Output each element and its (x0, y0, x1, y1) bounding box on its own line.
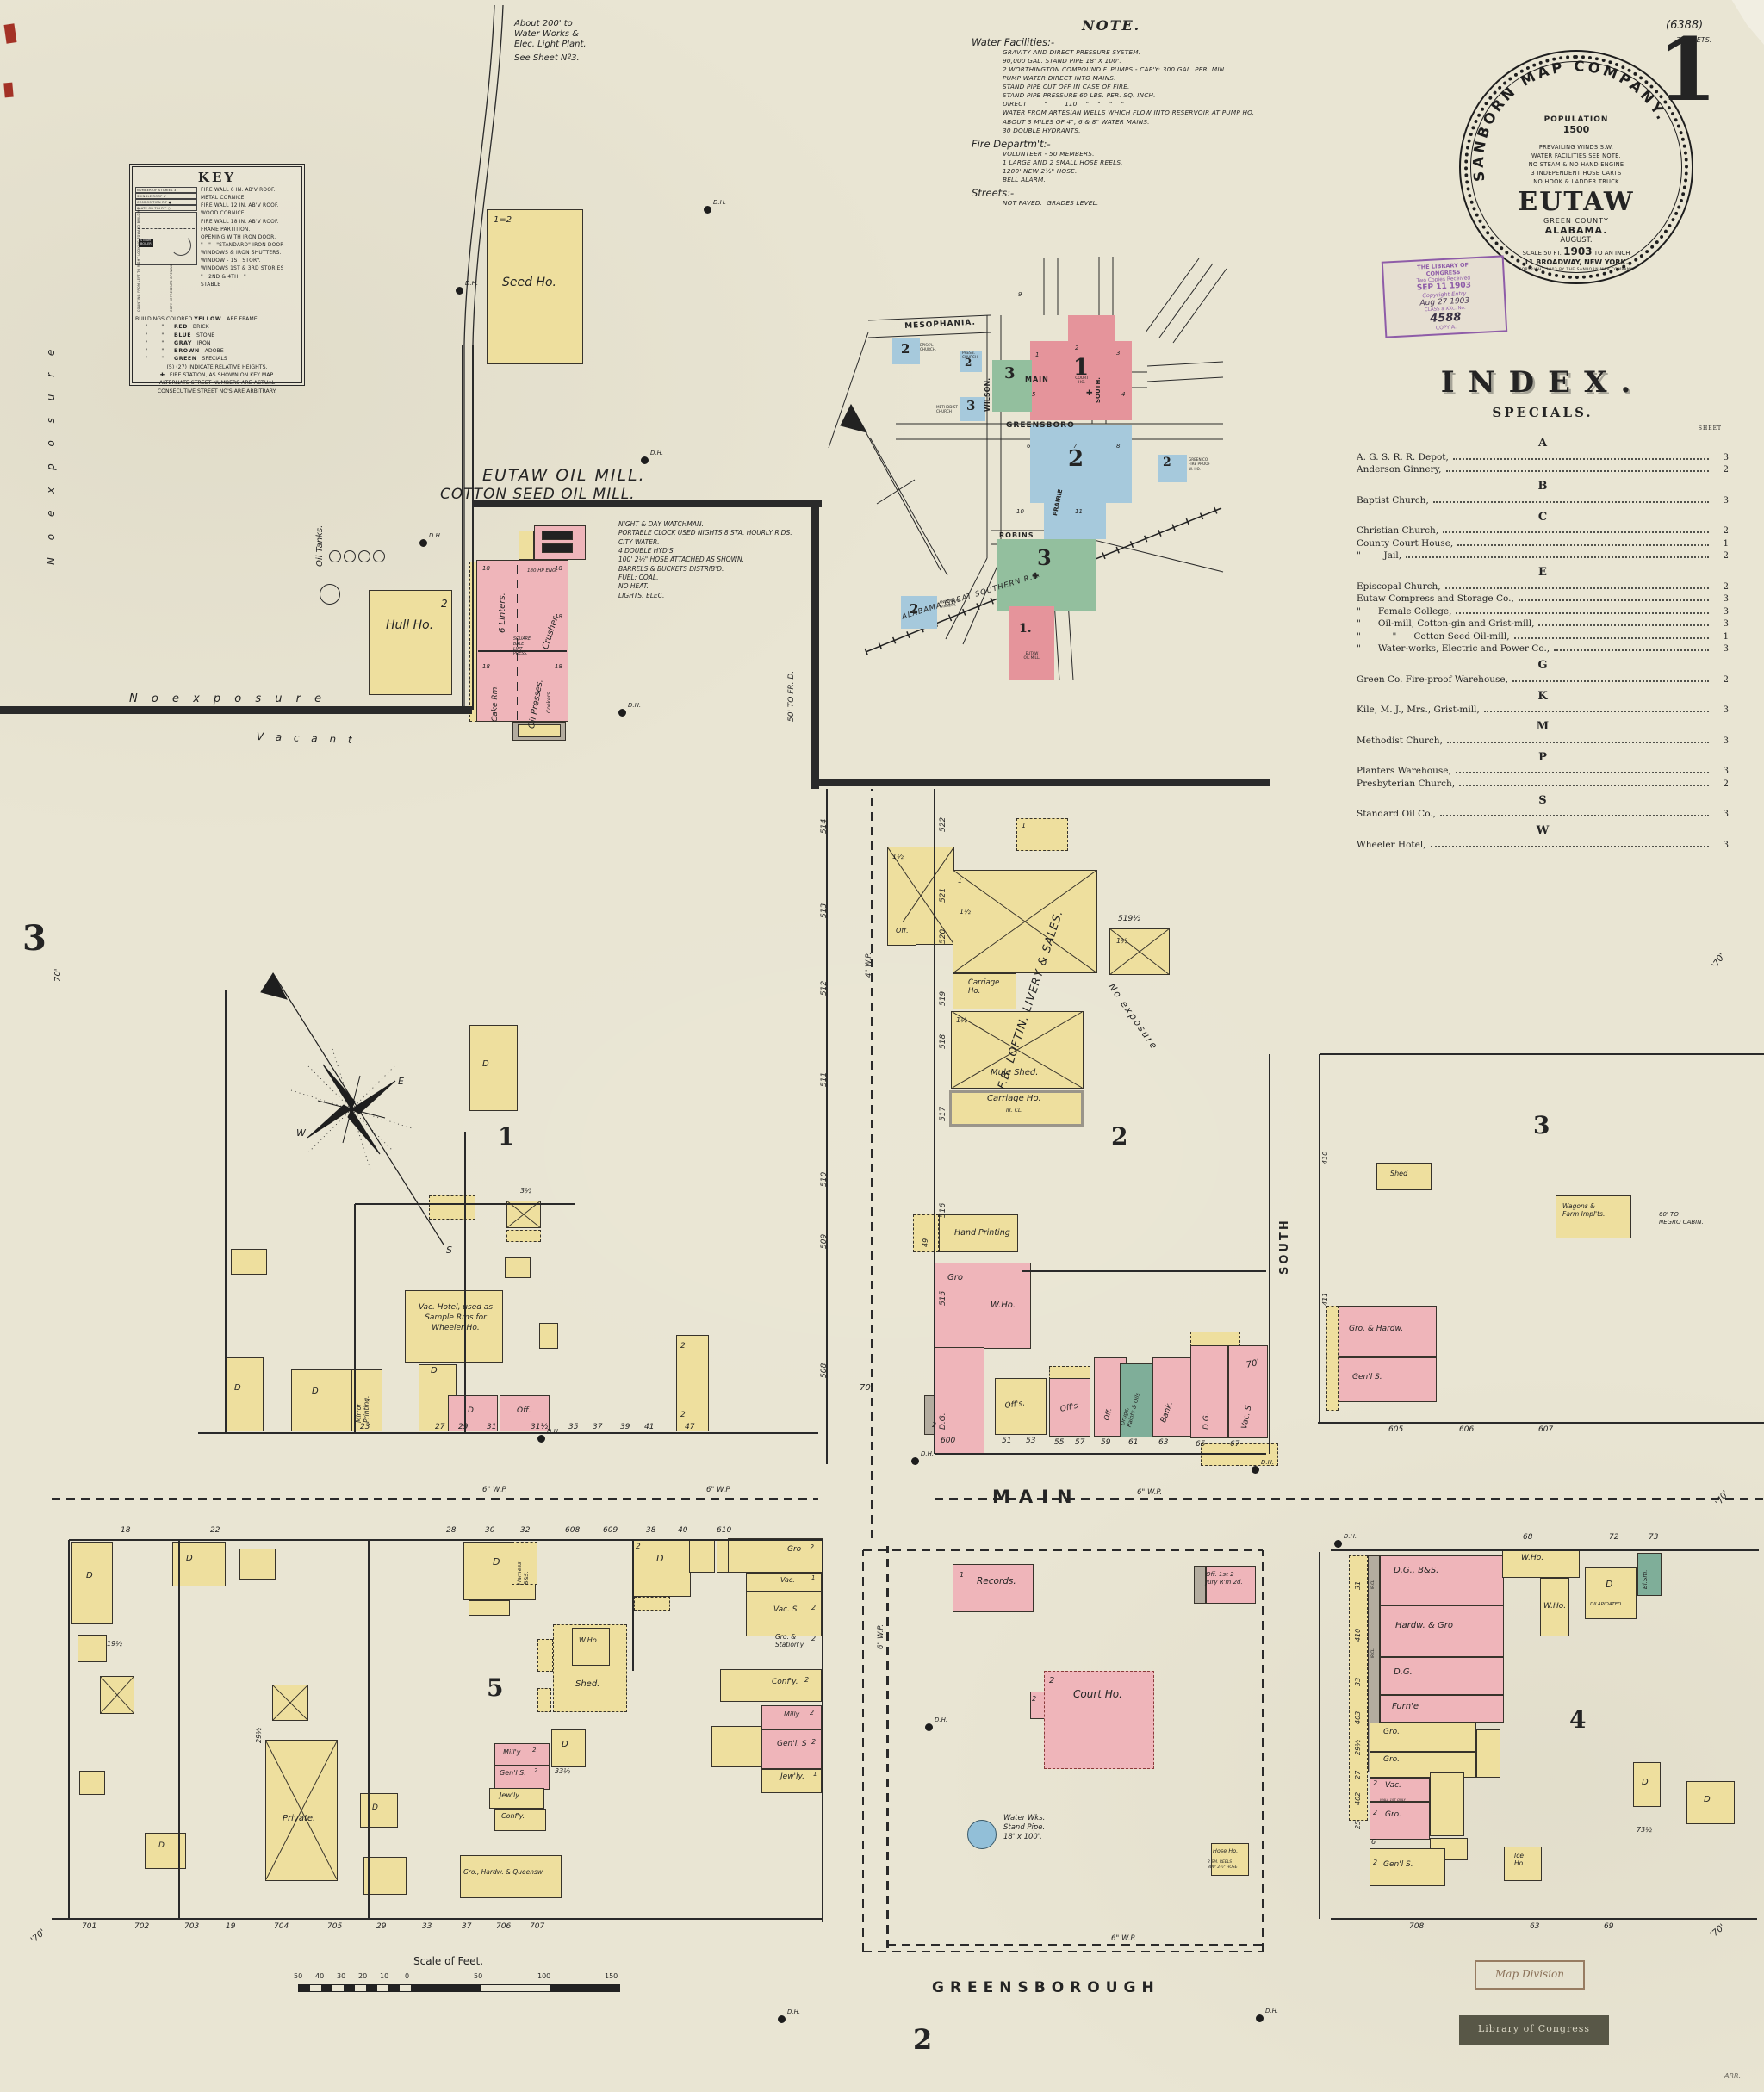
index-entry: " " Cotton Seed Oil-mill,1 (1357, 631, 1729, 642)
map-label: 180 HP ENG. (527, 568, 557, 574)
map-label: W.Ho. (579, 1636, 599, 1644)
building-footprint (1009, 606, 1054, 680)
index-panel: INDEX. SPECIALS. SHEET AA. G. S. R. R. D… (1357, 365, 1729, 852)
index-entry-name: " Female College, (1357, 606, 1451, 617)
index-entry-sheet: 3 (1713, 495, 1729, 506)
index-entry-name: A. G. S. R. R. Depot, (1357, 452, 1449, 462)
map-label: 411 (1321, 1293, 1329, 1306)
map-label: D (562, 1740, 568, 1750)
county: GREEN COUNTY (1471, 217, 1681, 225)
street-lot-line (52, 1918, 823, 1919)
index-entry-sheet: 1 (1713, 538, 1729, 549)
map-label: D (186, 1554, 193, 1564)
map-label: 508 (820, 1363, 829, 1378)
map-label: 1 (1022, 822, 1026, 829)
map-label: 18 (482, 565, 490, 572)
street-lot-line (198, 1432, 818, 1433)
map-label: 600 (941, 1437, 955, 1446)
building-footprint (369, 590, 452, 695)
index-letter-heading: C (1357, 511, 1729, 524)
oil-tank (344, 550, 356, 562)
key-caption: COUNTING FROM LEFT TO RIGHT LOOKING TOWA… (137, 207, 140, 312)
map-label: 29 (458, 1423, 468, 1432)
map-label: 1½ (956, 1016, 967, 1024)
index-leader-dots (1431, 846, 1709, 847)
map-label: Harness B&S. (517, 1562, 531, 1585)
building-footprint (506, 1230, 541, 1242)
key-color-row: " " BROWN ADOBE (135, 347, 299, 355)
double-hydrant-dot (419, 539, 427, 547)
double-hydrant-label: D.H. (1265, 2008, 1278, 2014)
building-footprint (272, 1685, 308, 1721)
index-entry-name: Methodist Church, (1357, 736, 1443, 746)
building-footprint (1152, 1357, 1194, 1437)
building-footprint (1326, 1306, 1339, 1411)
double-hydrant-dot (537, 1435, 545, 1443)
map-label: Scale of Feet. (413, 1955, 483, 1967)
note-line: NOT PAVED. GRADES LEVEL. (1003, 199, 1239, 208)
building-footprint (711, 1726, 761, 1767)
map-label: Private. (283, 1814, 315, 1824)
index-entry: Green Co. Fire-proof Warehouse,2 (1357, 674, 1729, 685)
map-label: 49 (922, 1238, 929, 1247)
key-symbol-line: WINDOWS & IRON SHUTTERS. (201, 250, 299, 258)
map-label: D.G., B&S. (1394, 1566, 1438, 1576)
map-label: D.G. (939, 1412, 948, 1430)
map-label: 39 (620, 1423, 630, 1432)
map-label: 2 (965, 357, 972, 369)
map-label: 2 (1049, 1676, 1054, 1686)
map-label: METHODIST CHURCH (936, 405, 958, 414)
index-leader-dots (1446, 470, 1710, 472)
map-label: 3 (966, 399, 975, 414)
map-label: 1 (1035, 351, 1039, 358)
index-letter-heading: M (1357, 720, 1729, 733)
index-entry-sheet: 3 (1713, 606, 1729, 617)
map-label: Vac. (780, 1576, 795, 1584)
street-lot-line (464, 1132, 465, 1433)
double-hydrant-dot (456, 287, 463, 295)
street-lot-line (1319, 1054, 1320, 1423)
building-footprint (720, 1669, 822, 1702)
index-entry-name: " Jail, (1357, 550, 1401, 561)
map-label: 1. (1019, 622, 1032, 636)
index-sheet-column-label: SHEET (1357, 425, 1722, 431)
double-hydrant-dot (1256, 2014, 1264, 2022)
map-label: 29½ (255, 1728, 263, 1743)
index-entry-sheet: 2 (1713, 464, 1729, 475)
index-entry-name: Episcopal Church, (1357, 581, 1441, 592)
map-label: IR. CL. (1006, 1108, 1022, 1114)
map-label: 32 (520, 1526, 530, 1536)
map-label: 28 (446, 1526, 456, 1536)
map-label: DILAPIDATED (1590, 1602, 1621, 1607)
map-label: N o e x p o s u r e (45, 343, 57, 565)
map-label: 47 (685, 1423, 694, 1432)
index-entry: Baptist Church,3 (1357, 495, 1729, 506)
map-label: MAIN (1025, 376, 1049, 383)
index-entry: Kile, M. J., Mrs., Grist-mill,3 (1357, 705, 1729, 715)
map-label: D (234, 1383, 241, 1394)
index-entry-name: " Water-works, Electric and Power Co., (1357, 643, 1550, 654)
map-label: 38 (646, 1526, 655, 1536)
building-footprint (1585, 1567, 1637, 1619)
map-label: 70' (860, 1383, 873, 1394)
key-color-row: " " BLUE STONE (135, 332, 299, 339)
key-symbol-line: FIRE WALL 12 IN. AB'V ROOF. (201, 202, 299, 210)
map-label: Gen'l. S (777, 1740, 807, 1749)
scale-right: TO AN INCH (1594, 250, 1630, 257)
map-label: 2 (810, 1709, 814, 1716)
note-line: ABOUT 3 MILES OF 4", 6 & 8" WATER MAINS. (1003, 118, 1239, 127)
building-footprint (519, 531, 534, 560)
map-label: 2 (810, 1543, 814, 1551)
map-label: 5 (1032, 391, 1035, 398)
map-label: 0 (405, 1972, 409, 1980)
building-footprint (953, 1564, 1034, 1612)
map-label: Hose Ho. (1213, 1848, 1238, 1855)
map-label: 522 (939, 817, 948, 832)
map-label: 2 (811, 1604, 816, 1611)
key-color-row: " " GRAY IRON (135, 339, 299, 347)
seal-facts: PREVAILING WINDS S.W.WATER FACILITIES SE… (1471, 144, 1681, 186)
key-symbol-line: " 2ND & 4TH " (201, 274, 299, 282)
map-label: D (1606, 1580, 1612, 1591)
map-label: 3 (22, 918, 47, 959)
index-entry-name: Anderson Ginnery, (1357, 464, 1442, 475)
street-lot-line (1022, 1270, 1266, 1271)
index-entry: County Court House,1 (1357, 538, 1729, 549)
building-footprint (78, 1635, 107, 1662)
note-line: 2 WORTHINGTON COMPOUND F. PUMPS - CAP'Y:… (1003, 65, 1239, 74)
street-lot-line (1269, 1054, 1270, 1454)
scale-left: SCALE 50 FT. (1523, 250, 1562, 257)
index-letter-heading: E (1357, 566, 1729, 579)
building-footprint (505, 1257, 531, 1278)
index-letter-heading: A (1357, 437, 1729, 450)
map-label: ✚ (1086, 389, 1093, 399)
seal-fact-line: 3 INDEPENDENT HOSE CARTS (1471, 170, 1681, 178)
double-hydrant-label: D.H. (713, 199, 726, 206)
key-diagram-row: SLATE OR TIN R'F ○ (135, 205, 197, 211)
map-label: W.Ho. (1521, 1554, 1543, 1563)
map-label: Mirror Printing. (355, 1396, 370, 1423)
map-label: 2 (636, 1543, 641, 1552)
map-label: 40 (315, 1972, 324, 1980)
building-footprint (572, 1628, 610, 1666)
map-label: D.G. (1202, 1412, 1212, 1430)
map-label: Carriage Ho. (968, 978, 999, 996)
index-leader-dots (1447, 742, 1709, 743)
index-entry: Planters Warehouse,3 (1357, 766, 1729, 776)
double-hydrant-dot (911, 1457, 919, 1465)
map-label: D (482, 1059, 489, 1070)
population-label: POPULATION (1471, 115, 1681, 124)
street-lot-line (1319, 1552, 1320, 1919)
index-body: AA. G. S. R. R. Depot,3Anderson Ginnery,… (1357, 437, 1729, 850)
map-label: 33 (422, 1922, 432, 1932)
building-footprint (79, 1771, 105, 1795)
sheet-boundary-line (811, 503, 819, 789)
state: ALABAMA. (1471, 225, 1681, 236)
map-label: 509 (820, 1234, 829, 1249)
key-diagram: NUMBER OF STORIES 3SHINGLE ROOF ✗COMPOSI… (135, 187, 197, 313)
building-footprint (1349, 1555, 1368, 1821)
map-label: 73½ (1637, 1826, 1652, 1834)
water-pipe-or-dashed-line (863, 1549, 1263, 1551)
index-entry-sheet: 3 (1713, 593, 1729, 604)
map-label: 2 (1163, 456, 1171, 470)
water-pipe-or-dashed-line (1262, 1550, 1264, 1952)
map-label: 63 (1158, 1438, 1168, 1448)
index-entry: Wheeler Hotel,3 (1357, 840, 1729, 850)
map-label: 606 (1459, 1425, 1474, 1435)
map-label: D (468, 1406, 474, 1416)
key-symbol-line: WOOD CORNICE. (201, 210, 299, 218)
map-label: 18 (482, 663, 490, 670)
street-lot-line (355, 1203, 575, 1204)
map-label: 2 (1373, 1859, 1377, 1866)
key-symbol-line: WINDOWS 1ST & 3RD STORIES (201, 265, 299, 273)
map-label: IR.CL. (1371, 1648, 1376, 1658)
note-section-heading: Streets:- (972, 187, 1239, 199)
street-lot-line (1331, 1918, 1757, 1919)
note-section-heading: Water Facilities:- (972, 36, 1239, 48)
key-legend: KEY NUMBER OF STORIES 3SHINGLE ROOF ✗COM… (129, 164, 305, 386)
double-hydrant-dot (1252, 1466, 1259, 1474)
map-label: 60' TO NEGRO CABIN. (1659, 1211, 1704, 1226)
map-label: 9 (1018, 291, 1022, 298)
map-label: Records. (977, 1576, 1016, 1586)
map-label: Gro (787, 1545, 801, 1555)
map-label: 11 (1075, 508, 1083, 515)
building-footprint (634, 1597, 670, 1611)
map-label: Gro. (1383, 1728, 1400, 1737)
index-title: INDEX. (1357, 365, 1729, 400)
map-label: 1½ (960, 908, 971, 916)
map-label: 29 (376, 1922, 386, 1932)
map-label: 3 (1116, 350, 1120, 357)
copyright-receipt-stamp: THE LIBRARY OF CONGRESS Two Copies Recei… (1382, 255, 1507, 338)
index-leader-dots (1514, 637, 1709, 639)
map-label: EPISC'L CHURCH. (920, 343, 936, 352)
city-name: EUTAW (1471, 187, 1681, 217)
index-letter-heading: W (1357, 824, 1729, 837)
map-label: 2 (804, 1676, 809, 1684)
key-diagram-row: COMPOSITION R'F ● (135, 199, 197, 205)
building-footprint (172, 1542, 226, 1586)
map-label: D.G. (1394, 1667, 1413, 1678)
index-entry-name: " Oil-mill, Cotton-gin and Grist-mill, (1357, 618, 1534, 629)
key-symbol-line: " " "STANDARD" IRON DOOR (201, 242, 299, 250)
map-label: ✚ (1032, 572, 1039, 582)
seal-content: POPULATION 1500 ⸺⸺ PREVAILING WINDS S.W.… (1471, 62, 1681, 272)
map-label: GREEN CO. FIRE PROOF W. HO. (1189, 457, 1210, 471)
map-label: 6 Linters. (498, 593, 508, 633)
index-entry: Methodist Church,3 (1357, 736, 1729, 746)
map-label: 6" W.P. (706, 1486, 731, 1494)
note-line: DIRECT " 110 " " " " (1003, 100, 1239, 109)
street-lot-line (935, 1453, 1266, 1454)
index-entry-name: Baptist Church, (1357, 495, 1429, 506)
map-label: 3 (1533, 1111, 1550, 1139)
oil-tank (320, 584, 340, 605)
seal-divider: ⸺⸺ (1471, 135, 1681, 144)
map-label: 57 (1075, 1438, 1084, 1448)
note-line: BELL ALARM. (1003, 176, 1239, 184)
map-label: 707 (530, 1922, 544, 1932)
map-label: Milly. (784, 1710, 801, 1718)
map-label: Vac. Hotel, used as Sample Rms for Wheel… (405, 1302, 506, 1333)
map-label: 1 (811, 1574, 815, 1581)
building-footprint (231, 1249, 267, 1275)
map-label: 1½ (892, 853, 904, 860)
building-footprint (537, 1639, 553, 1672)
map-label: 4 (1121, 391, 1125, 398)
map-label: Carriage Ho. (987, 1094, 1041, 1104)
seal-fact-line: NO HOOK & LADDER TRUCK (1471, 178, 1681, 187)
map-label: 41 (644, 1423, 654, 1432)
map-label: D (372, 1803, 378, 1813)
map-label: 2 (1032, 1695, 1036, 1703)
building-footprint (1686, 1781, 1735, 1824)
key-heights-line: (5) (27) INDICATE RELATIVE HEIGHTS. (135, 363, 299, 371)
map-label: 2 (1068, 446, 1084, 473)
survey-month: AUGUST. (1471, 236, 1681, 245)
index-entry: " Female College,3 (1357, 606, 1729, 617)
map-label: 514 (820, 819, 829, 834)
index-entry-name: " " Cotton Seed Oil-mill, (1357, 631, 1510, 642)
map-label: E (398, 1077, 404, 1088)
map-label: 3½ (520, 1187, 531, 1195)
building-footprint (1380, 1555, 1504, 1605)
building-footprint (100, 1676, 134, 1714)
map-label: 1 (498, 1122, 514, 1151)
map-label: 403 (1354, 1711, 1362, 1724)
map-label: 2 (441, 598, 448, 610)
map-label: 6 (1027, 443, 1030, 450)
building-footprint (469, 1600, 510, 1616)
building-footprint (145, 1833, 186, 1869)
index-entry: Anderson Ginnery,2 (1357, 464, 1729, 475)
building-footprint (1370, 1802, 1430, 1840)
index-entry-sheet: 2 (1713, 550, 1729, 561)
map-label: Court Ho. (1073, 1688, 1122, 1700)
building-footprint (1109, 928, 1170, 975)
building-footprint (1068, 315, 1115, 343)
index-entry-sheet: 2 (1713, 525, 1729, 536)
map-label: 704 (274, 1922, 289, 1932)
building-footprint (460, 1855, 562, 1898)
index-leader-dots (1443, 531, 1709, 533)
index-entry-sheet: 3 (1713, 736, 1729, 746)
map-label: S (446, 1245, 452, 1257)
map-label: 708 (1409, 1922, 1424, 1932)
map-label: D (1704, 1795, 1711, 1805)
index-entry: " Jail,2 (1357, 550, 1729, 561)
building-footprint (689, 1540, 715, 1573)
map-label: ROBINS (999, 531, 1034, 539)
map-label: 18 (121, 1526, 130, 1536)
oil-tank (373, 550, 385, 562)
map-label: NIGHT & DAY WATCHMAN. PORTABLE CLOCK USE… (618, 520, 792, 600)
index-entry-sheet: 3 (1713, 809, 1729, 819)
map-label: 20 (358, 1972, 367, 1980)
building-footprint (542, 531, 573, 540)
index-leader-dots (1457, 544, 1709, 546)
index-leader-dots (1484, 711, 1709, 712)
map-label: 410 (1354, 1629, 1362, 1642)
inset-north-arrow (841, 405, 941, 570)
building-footprint (363, 1857, 407, 1895)
map-label: 2 (1373, 1779, 1377, 1787)
map-label: Mule Shed. (991, 1068, 1038, 1078)
map-label: 1 (1073, 355, 1089, 382)
map-label: 31½ (531, 1423, 548, 1432)
water-pipe-or-dashed-line (519, 605, 567, 605)
index-leader-dots (1433, 501, 1709, 503)
map-label: 73 (1649, 1533, 1658, 1543)
map-label: Cookers. (546, 691, 552, 713)
map-label: 2 (811, 1738, 816, 1746)
building-footprint (953, 870, 1097, 973)
water-pipe-or-dashed-line (863, 1951, 1263, 1952)
note-line: 1 LARGE AND 2 SMALL HOSE REELS. (1003, 158, 1239, 167)
map-label: 4 (1569, 1705, 1586, 1734)
note-section-lines: NOT PAVED. GRADES LEVEL. (972, 199, 1239, 208)
map-label: 2 (932, 1421, 936, 1429)
map-label: Hull Ho. (386, 618, 433, 633)
library-of-congress-stamp: Library of Congress (1459, 2015, 1609, 2045)
index-leader-dots (1440, 815, 1709, 816)
map-label: 1 (960, 1571, 964, 1579)
building-footprint (537, 1688, 551, 1712)
map-label: 515 (939, 1291, 948, 1306)
index-entry-name: County Court House, (1357, 538, 1453, 549)
key-diagram-row: SHINGLE ROOF ✗ (135, 193, 197, 199)
map-label: Conf'y. (501, 1812, 525, 1820)
map-label: Furn'e (1392, 1702, 1419, 1712)
map-label: 18 (555, 613, 562, 620)
building-footprint (1476, 1729, 1500, 1778)
key-color-row: BUILDINGS COLORED YELLOW ARE FRAME (135, 315, 299, 323)
map-label: Gen'l S. (500, 1769, 526, 1777)
map-label: 706 (496, 1922, 511, 1932)
note-block: NOTE. Water Facilities:-GRAVITY AND DIRE… (972, 17, 1239, 208)
sheet-boundary-line (815, 779, 1270, 786)
map-label: Gen'l S. (1383, 1860, 1413, 1870)
index-entry: A. G. S. R. R. Depot,3 (1357, 452, 1729, 462)
map-label: 55 (1054, 1438, 1064, 1448)
index-entry-name: Wheeler Hotel, (1357, 840, 1426, 850)
map-label: GREENSBORO (1006, 421, 1075, 431)
index-leader-dots (1445, 587, 1709, 589)
map-label: W.Ho. (1543, 1602, 1566, 1611)
key-symbol-line: OPENING WITH IRON DOOR. (201, 234, 299, 242)
key-symbol-line: FRAME PARTITION. (201, 227, 299, 234)
water-pipe-or-dashed-line (887, 1944, 1264, 1946)
map-label: Oil Tanks. (315, 525, 326, 567)
index-entry-name: Presbyterian Church, (1357, 779, 1455, 789)
note-line: 90,000 GAL. STAND PIPE 18' X 100'. (1003, 57, 1239, 65)
map-label: Shed (1390, 1170, 1407, 1177)
map-label: WILSON. (984, 378, 991, 412)
street-lot-line (934, 789, 935, 1454)
index-entry-sheet: 3 (1713, 618, 1729, 629)
building-footprint (429, 1195, 475, 1220)
map-label: 705 (327, 1922, 342, 1932)
map-label: 23 (360, 1423, 370, 1432)
